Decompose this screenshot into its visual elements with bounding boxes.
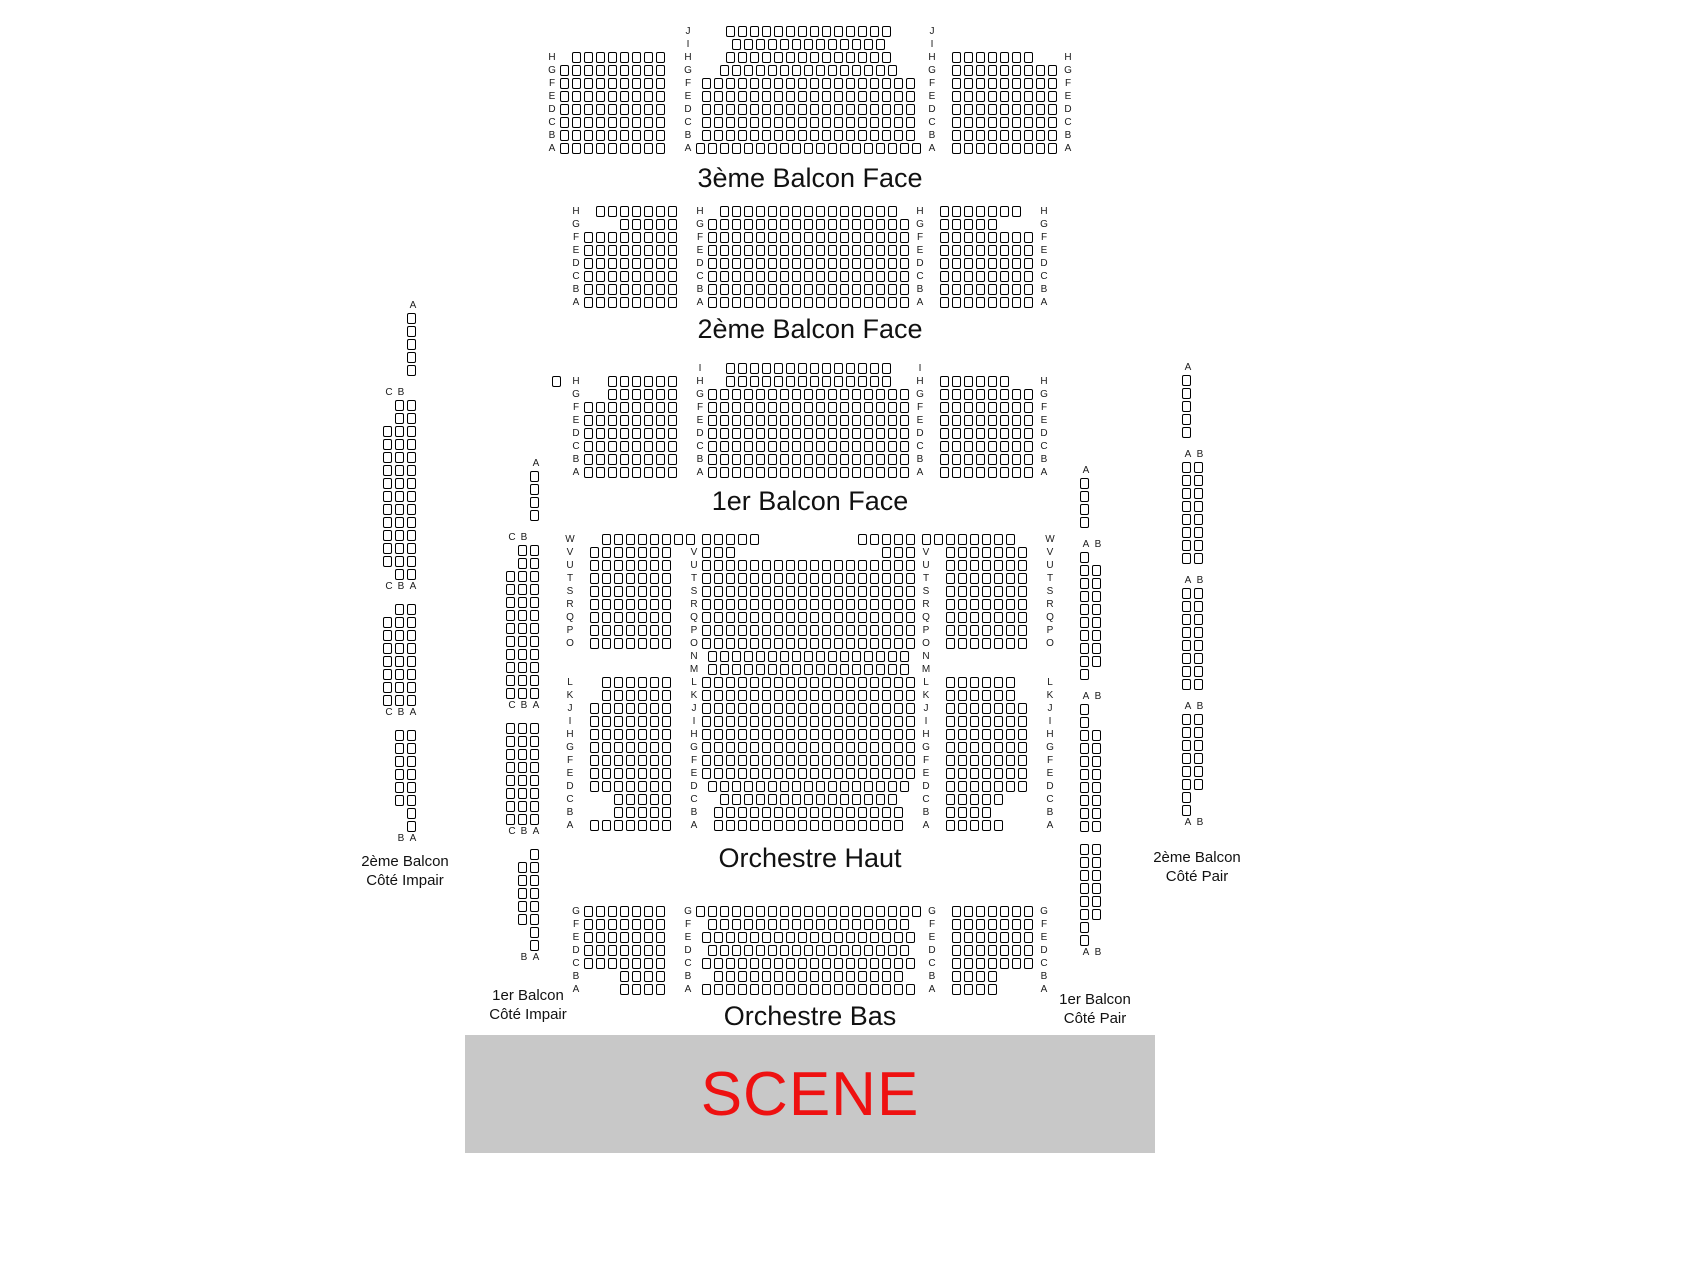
seat [650,729,659,740]
seat [988,376,997,387]
seat [870,820,879,831]
row-label: D [680,944,696,957]
seat [792,467,801,478]
seat [840,651,849,662]
seat [1012,919,1021,930]
seat-row-F: F [562,754,674,767]
seat [982,820,991,831]
seat [822,638,831,649]
seat [882,742,891,753]
seat [1182,427,1191,438]
seat [1000,104,1009,115]
seat [870,363,879,374]
row-label: F [680,77,696,90]
seat [620,402,629,413]
seat [650,742,659,753]
seat [798,958,807,969]
seat [662,729,671,740]
seat [714,820,723,831]
seat [1000,389,1009,400]
side-label-row: AB [1182,449,1206,461]
seat-row-E: E [940,414,1052,427]
row-label: A [1182,449,1194,461]
row-label: F [1042,754,1058,767]
seat-row-T: T [562,572,674,585]
balcon2-cote-pair-group-4: ABAB [1182,701,1206,829]
seat [1080,808,1089,819]
seat [614,716,623,727]
seat [1024,428,1033,439]
seat [650,612,659,623]
row-label: J [686,702,702,715]
seat [786,677,795,688]
seat [584,284,593,295]
row-label: D [912,427,928,440]
seat [1080,896,1089,907]
seat [840,297,849,308]
seat [762,984,771,995]
row-label: L [918,676,934,689]
seat [864,441,873,452]
seat [608,454,617,465]
seat-row [1182,791,1206,804]
seat [774,703,783,714]
row-label: F [924,77,940,90]
seat-row-F: FF [686,754,934,767]
seat [1194,553,1203,564]
seat [822,729,831,740]
row-label: K [1042,689,1058,702]
seat [982,703,991,714]
seat [1048,91,1057,102]
seat [816,441,825,452]
seat [762,560,771,571]
row-label: N [686,650,702,663]
seat-row-I: II [680,38,940,51]
seat [906,560,915,571]
seat [946,794,955,805]
seat [858,363,867,374]
seat [1024,389,1033,400]
seat [828,271,837,282]
seat [906,958,915,969]
seat [870,755,879,766]
seat-row [1080,668,1104,681]
seat [780,651,789,662]
seat [792,945,801,956]
seat [804,389,813,400]
seat [988,78,997,89]
seat [976,958,985,969]
seat [888,794,897,805]
seat [982,586,991,597]
seat [906,599,915,610]
seat [518,597,527,608]
row-label: H [1060,51,1076,64]
row-label: D [918,780,934,793]
seat [774,984,783,995]
seat [1036,104,1045,115]
seat [644,454,653,465]
seat [572,104,581,115]
seat [864,39,873,50]
seat [1182,766,1191,777]
seat [614,625,623,636]
seat [988,117,997,128]
seat [816,389,825,400]
seat [810,104,819,115]
seat [958,612,967,623]
seat [840,794,849,805]
seat [774,117,783,128]
seat [858,755,867,766]
seat [395,517,404,528]
seat-row [1182,413,1206,426]
seat [774,586,783,597]
balcon1-cote-impair-group-4: BA [506,848,542,964]
seat [608,104,617,115]
seat [1000,958,1009,969]
seat [756,781,765,792]
row-label: B [686,806,702,819]
seat [614,677,623,688]
seat [858,768,867,779]
seat [708,245,717,256]
seat [383,439,392,450]
seat [964,402,973,413]
seat [976,376,985,387]
seat [1012,441,1021,452]
seat [846,91,855,102]
seat [596,919,605,930]
seat [792,651,801,662]
seat [834,971,843,982]
seat [870,104,879,115]
seat [608,919,617,930]
seat [395,669,404,680]
seat [726,363,735,374]
row-label: C [383,581,395,593]
seat [762,376,771,387]
row-label: J [1042,702,1058,715]
seat [750,755,759,766]
seat [714,547,723,558]
seat [774,971,783,982]
seat [662,820,671,831]
seat [870,677,879,688]
seat-row [1182,665,1206,678]
seat [702,599,711,610]
seat [840,906,849,917]
seat [732,454,741,465]
seat [530,510,539,521]
seat [906,91,915,102]
seat [602,742,611,753]
seat [726,820,735,831]
seat [1182,514,1191,525]
seat-row [1080,921,1104,934]
seat [900,297,909,308]
seat [894,599,903,610]
seat [572,91,581,102]
seat-row-E: E [946,767,1058,780]
seat [1000,143,1009,154]
seat [720,415,729,426]
seat [952,78,961,89]
seat [720,143,729,154]
row-label: G [680,64,696,77]
row-label: C [1036,440,1052,453]
seat [912,143,921,154]
seat [720,428,729,439]
seat [852,297,861,308]
seat [906,703,915,714]
seat [702,768,711,779]
seat [608,389,617,400]
seat [774,376,783,387]
row-label: B [924,970,940,983]
seat-row-H: H [952,51,1076,64]
row-label: A [562,819,578,832]
seat [858,690,867,701]
seat [720,232,729,243]
row-label [506,458,518,470]
seat [596,104,605,115]
seat [982,742,991,753]
seat [530,497,539,508]
seat-row [1080,908,1104,921]
seat [840,389,849,400]
seat [876,284,885,295]
seat [840,945,849,956]
seat-row-H: HH [686,728,934,741]
balcon2-cote-pair-group-1: A [1182,362,1206,439]
seat-row [1182,613,1206,626]
seat [828,651,837,662]
seat [632,258,641,269]
seat-row [1080,820,1104,833]
seat [946,690,955,701]
seat [900,919,909,930]
seat [702,716,711,727]
seat [750,363,759,374]
seat [584,415,593,426]
seat [744,271,753,282]
seat [762,599,771,610]
seat [614,807,623,818]
seat-row-M: MM [686,663,934,676]
seat-row-F: F [568,918,668,931]
seat [620,52,629,63]
seat [804,428,813,439]
seat [858,599,867,610]
seat [1012,232,1021,243]
seat-row [383,629,419,642]
seat [738,703,747,714]
seat [870,971,879,982]
seat [964,932,973,943]
seat [738,117,747,128]
seat [976,297,985,308]
seat [602,547,611,558]
seat [395,743,404,754]
seat [1012,454,1021,465]
seat [1006,677,1015,688]
seat [644,428,653,439]
row-label: I [1042,715,1058,728]
seat [988,402,997,413]
seat [656,428,665,439]
seat [774,363,783,374]
seat [816,781,825,792]
seat-row [506,635,542,648]
seat [590,547,599,558]
seat [834,677,843,688]
seat [828,919,837,930]
seat [852,271,861,282]
side-label-row: BA [506,952,542,964]
seat [708,258,717,269]
balcon1-face: HGFEDCBAIIHHGGFFEEDDCCBBAAHGFEDCBA [0,362,1620,479]
seat [662,677,671,688]
seat [1006,742,1015,753]
row-label: B [518,700,530,712]
seat [714,742,723,753]
seat [976,52,985,63]
seat [518,801,527,812]
seat-row [506,570,542,583]
row-label: C [912,270,928,283]
seat [846,363,855,374]
row-label: C [1042,793,1058,806]
seat-row [1182,552,1206,565]
seat [882,612,891,623]
seat [738,91,747,102]
seat [1006,703,1015,714]
seat [383,478,392,489]
seat [940,415,949,426]
seat [1080,565,1089,576]
seat [828,258,837,269]
seat [668,467,677,478]
seat [798,376,807,387]
seat [744,39,753,50]
seat [846,984,855,995]
seat [1000,454,1009,465]
seat [1194,601,1203,612]
seat [768,781,777,792]
seat [518,623,527,634]
seat [732,219,741,230]
seat [644,906,653,917]
seat [650,573,659,584]
seat-row [1182,752,1206,765]
seat [1080,769,1089,780]
seat [798,625,807,636]
seat [620,932,629,943]
seat [958,820,967,831]
seat [958,690,967,701]
seat [407,730,416,741]
seat-row-B: B [544,129,668,142]
seat [762,958,771,969]
seat [756,906,765,917]
seat-row [506,661,542,674]
seat [888,271,897,282]
seat [810,755,819,766]
seat [638,560,647,571]
row-label: Q [686,611,702,624]
seat [530,736,539,747]
seat [780,206,789,217]
seat-row-O: O [946,637,1058,650]
seat [506,762,515,773]
seat-row [383,642,419,655]
seat [768,284,777,295]
row-label: E [544,90,560,103]
seat [786,363,795,374]
seat [407,604,416,615]
seat [608,117,617,128]
seat [894,690,903,701]
seat [828,65,837,76]
seat [632,919,641,930]
seat [804,467,813,478]
seat-row-E: E [952,90,1076,103]
seat [1018,716,1027,727]
seat [626,794,635,805]
seat [1182,779,1191,790]
seat [906,716,915,727]
seat-row [383,399,419,412]
seat [1080,857,1089,868]
seat [946,768,955,779]
seat [395,656,404,667]
seat [614,547,623,558]
row-label: G [924,905,940,918]
row-label: H [918,728,934,741]
row-label: G [912,218,928,231]
seat [882,26,891,37]
seat [620,219,629,230]
seat [407,569,416,580]
seat [958,729,967,740]
seat [864,428,873,439]
seat [756,428,765,439]
seat [828,664,837,675]
seat [668,415,677,426]
seat [976,906,985,917]
seat [888,441,897,452]
seat [1036,91,1045,102]
seat [584,467,593,478]
side-label-row: CBA [506,826,542,838]
seat [852,454,861,465]
seat [708,781,717,792]
seat [858,130,867,141]
seat [894,638,903,649]
seat [1012,143,1021,154]
seat [846,703,855,714]
seat [864,206,873,217]
seat [644,143,653,154]
seat [798,703,807,714]
seat [1080,604,1089,615]
seat [804,402,813,413]
seat [894,768,903,779]
seat [1182,553,1191,564]
seat [714,612,723,623]
